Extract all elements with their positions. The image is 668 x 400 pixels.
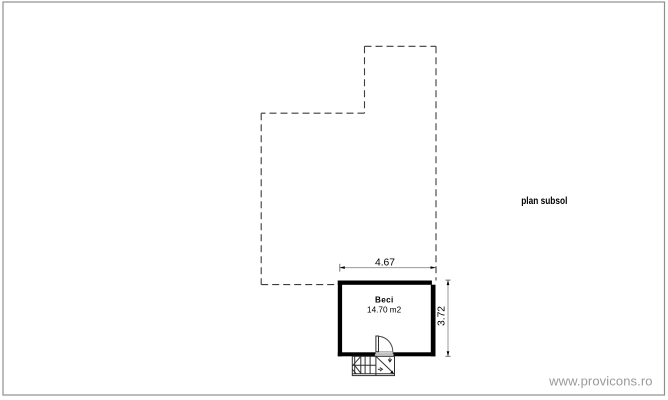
svg-text:14.70 m2: 14.70 m2	[367, 306, 402, 315]
svg-text:plan subsol: plan subsol	[521, 196, 567, 207]
svg-text:3.72: 3.72	[436, 306, 447, 326]
svg-text:Beci: Beci	[375, 296, 394, 305]
svg-text:www.provicons.ro: www.provicons.ro	[548, 373, 652, 388]
svg-text:4.67: 4.67	[375, 258, 395, 269]
